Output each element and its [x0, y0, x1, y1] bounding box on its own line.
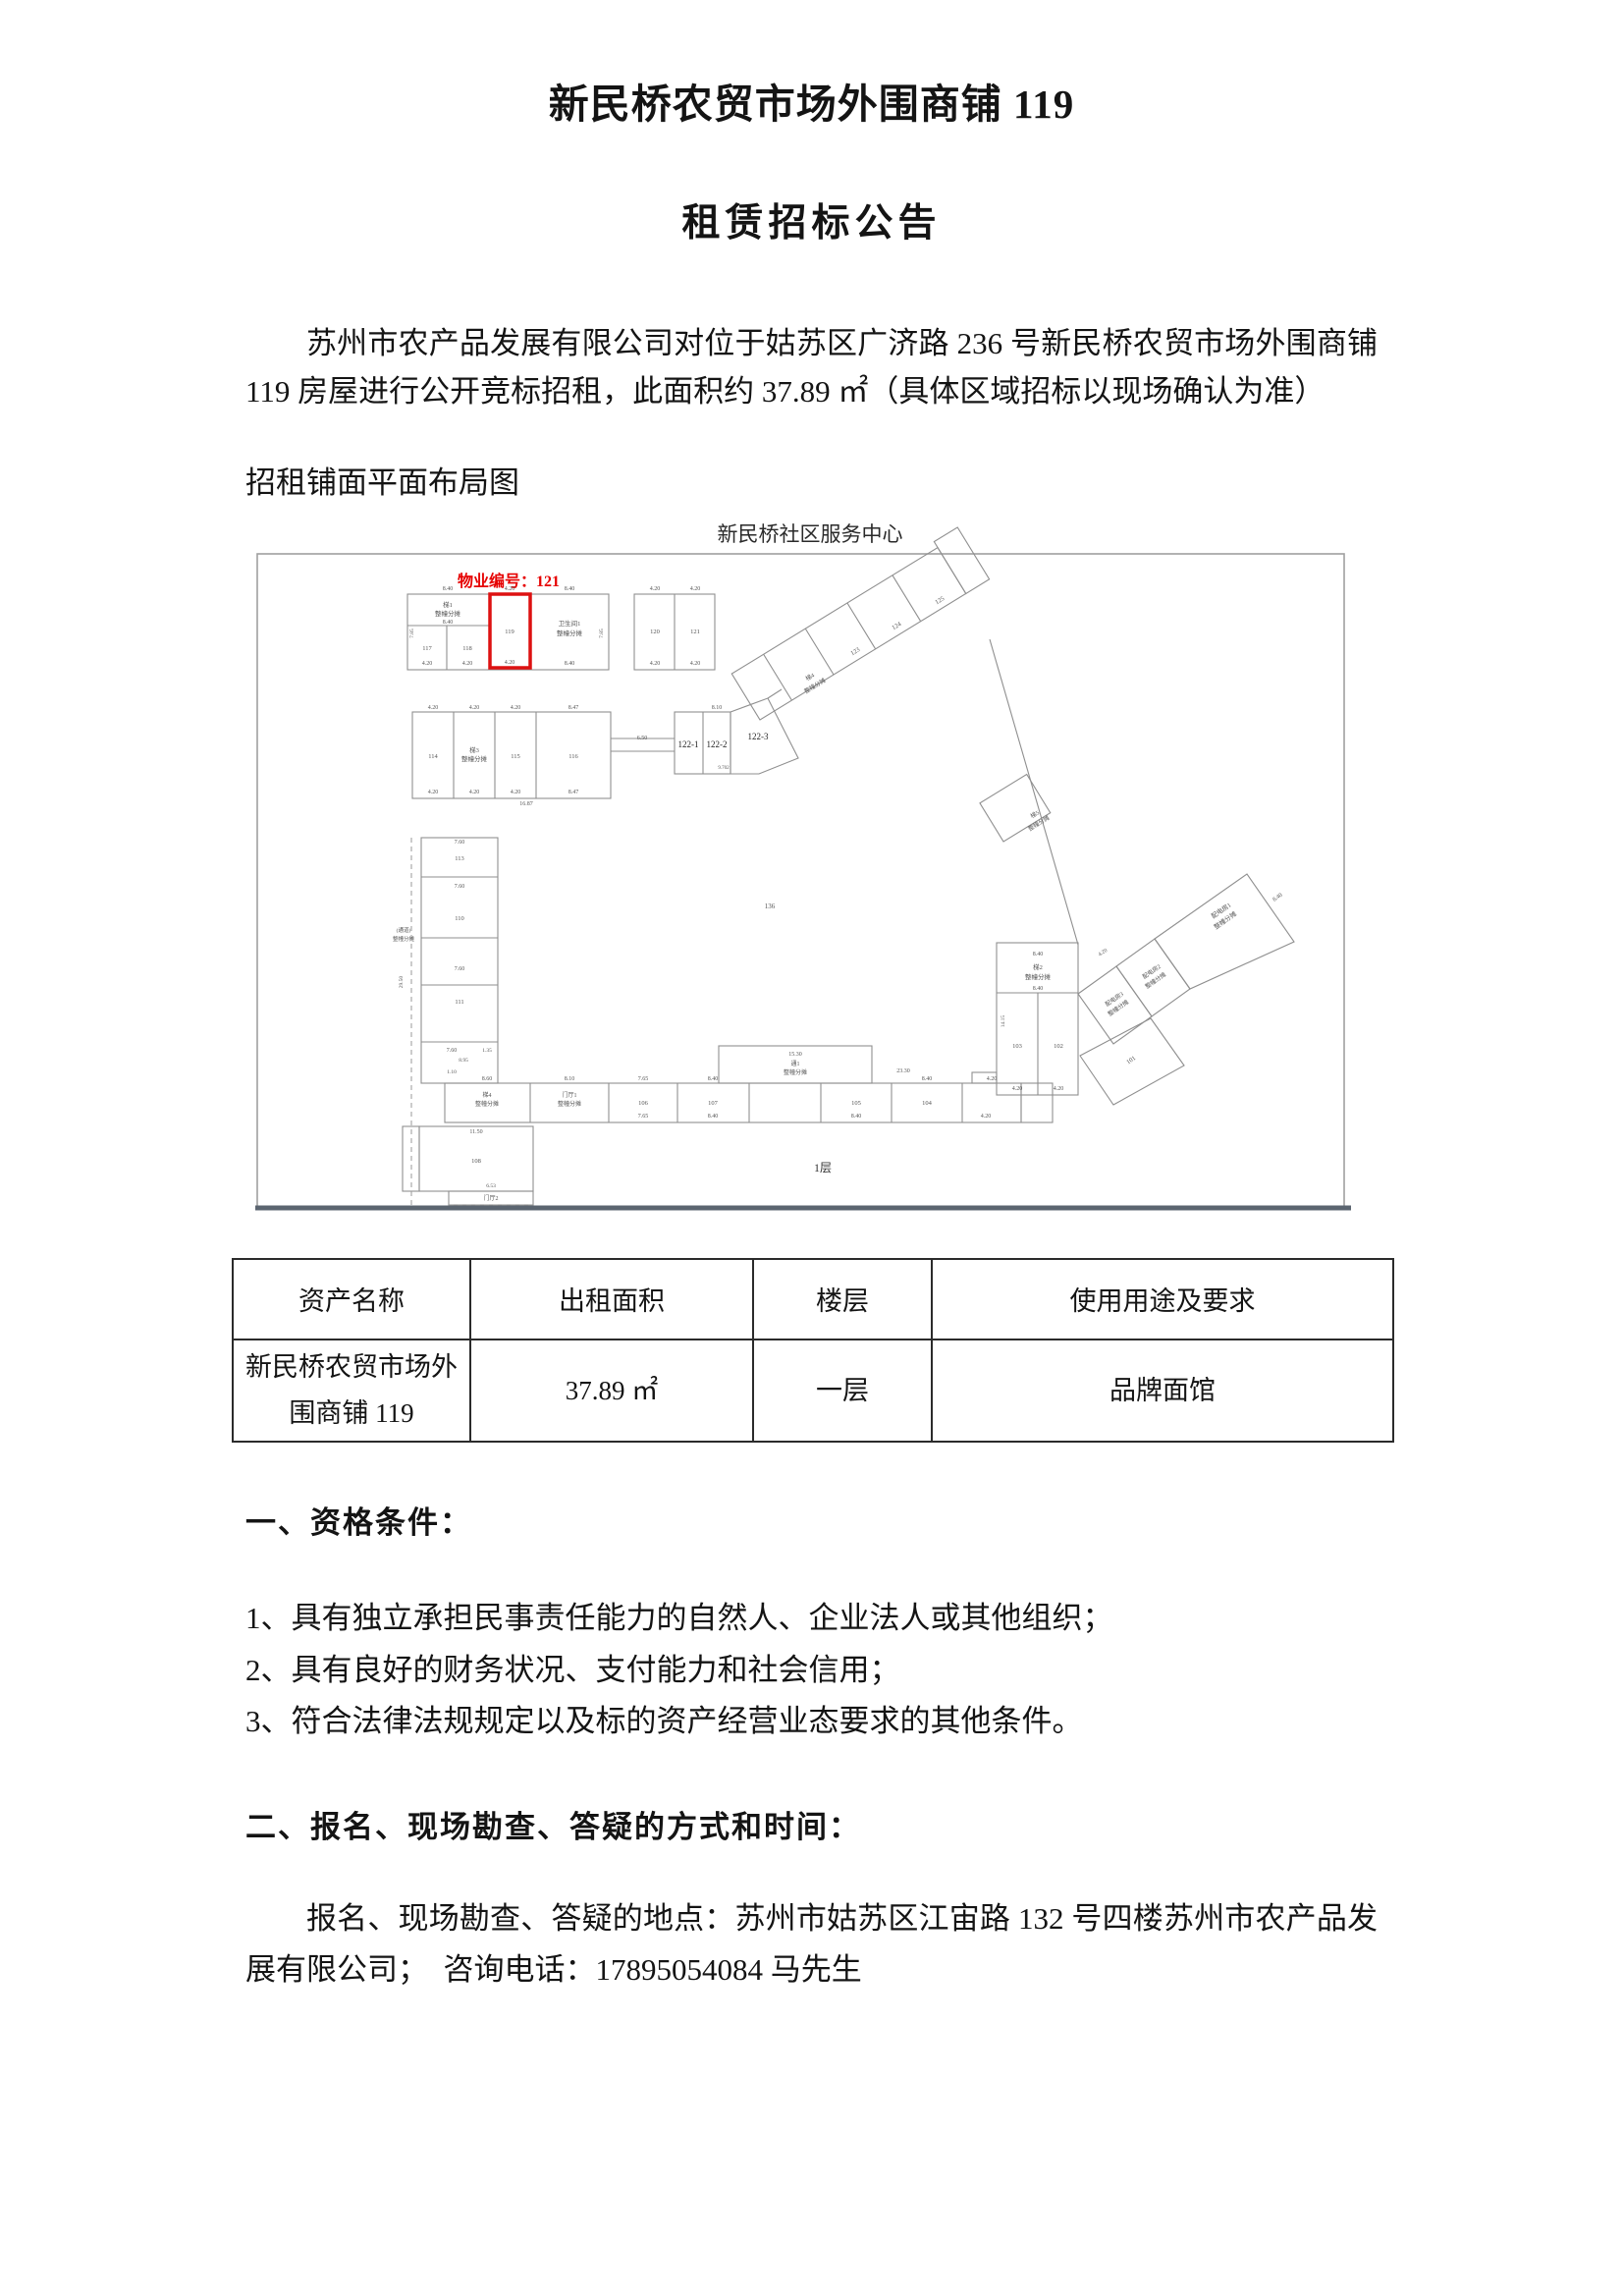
qualification-list: 1、具有独立承担民事责任能力的自然人、企业法人或其他组织； 2、具有良好的财务状… — [245, 1593, 1378, 1746]
table-header-row: 资产名称 出租面积 楼层 使用用途及要求 — [233, 1259, 1393, 1339]
plan-label: 8.40 — [443, 586, 454, 592]
plan-label: 整幢分摊 — [435, 609, 461, 618]
plan-blocks — [403, 527, 1294, 1205]
list-item: 3、符合法律法规规定以及标的资产经营业态要求的其他条件。 — [245, 1696, 1378, 1747]
plan-label: 8.40 — [1033, 986, 1044, 992]
plan-label: 4.20 — [428, 790, 439, 795]
plan-label: 7.60 — [447, 1048, 458, 1054]
plan-label: 整幢分摊 — [1025, 972, 1052, 981]
floor-plan-drawing: 新民桥社区服务中心物业编号：1218.404.208.40梯1整幢分摊8.401… — [255, 516, 1355, 1215]
plan-labels-layer: 新民桥社区服务中心物业编号：1218.404.208.40梯1整幢分摊8.401… — [393, 522, 1283, 1202]
plan-label: 通1 — [790, 1060, 799, 1067]
plan-label: 整幢分摊 — [393, 935, 415, 943]
plan-dashed-lines — [411, 838, 533, 1208]
plan-label: 116 — [568, 753, 578, 760]
plan-label: 4.20 — [690, 661, 701, 667]
plan-label: 7.65 — [638, 1114, 649, 1120]
plan-label: 7.60 — [455, 884, 465, 890]
plan-label: 124 — [891, 621, 903, 631]
plan-label: 卫生间1 — [559, 619, 581, 628]
plan-label: 4.20 — [505, 586, 515, 592]
plan-label: 4.20 — [428, 705, 439, 711]
plan-label: 1.10 — [447, 1069, 457, 1075]
plan-label: 9.702 — [718, 766, 730, 771]
plan-label: 8.40 — [443, 620, 454, 626]
cell-asset-name: 新民桥农贸市场外围商铺 119 — [233, 1339, 470, 1443]
plan-label: 8.47 — [568, 790, 579, 795]
cell-rent-area: 37.89 ㎡ — [470, 1339, 753, 1443]
plan-label: 1层 — [814, 1161, 832, 1175]
asset-table: 资产名称 出租面积 楼层 使用用途及要求 新民桥农贸市场外围商铺 119 37.… — [232, 1258, 1394, 1444]
plan-label: 梯3 — [469, 745, 479, 754]
plan-label: 118 — [462, 645, 472, 652]
intro-paragraph: 苏州市农产品发展有限公司对位于姑苏区广济路 236 号新民桥农贸市场外围商铺 1… — [245, 320, 1378, 416]
cell-floor: 一层 — [753, 1339, 932, 1443]
plan-label: 8.40 — [922, 1076, 933, 1082]
plan-label: 4.20 — [469, 790, 480, 795]
plan-label: 8.40 — [851, 1114, 862, 1120]
plan-label: 4.20 — [650, 586, 661, 592]
floor-plan-caption: 招租铺面平面布局图 — [245, 458, 1378, 502]
plan-label: 4.20 — [1012, 1086, 1023, 1092]
plan-label: 107 — [708, 1100, 719, 1107]
plan-label: 8.40 — [565, 661, 575, 667]
table-header-floor: 楼层 — [753, 1259, 932, 1339]
plan-label: 整幢分摊 — [557, 629, 583, 637]
plan-label: 4.20 — [511, 790, 521, 795]
plan-label: 4.20 — [690, 586, 701, 592]
plan-label: 122-2 — [707, 739, 728, 749]
plan-label: (通道) — [397, 926, 411, 934]
plan-label: 113 — [455, 855, 464, 862]
plan-label: 4.20 — [1054, 1086, 1064, 1092]
plan-label: 7.85 — [599, 629, 605, 638]
plan-label: 6.50 — [637, 736, 648, 741]
plan-label: 门厅1 — [562, 1091, 576, 1099]
plan-label: 整幢分摊 — [461, 754, 488, 763]
plan-label: 114 — [428, 753, 438, 760]
floor-plan-figure: 新民桥社区服务中心物业编号：1218.404.208.40梯1整幢分摊8.401… — [255, 516, 1355, 1215]
plan-label: 106 — [638, 1100, 649, 1107]
plan-label: 102 — [1054, 1043, 1063, 1050]
list-item: 2、具有良好的财务状况、支付能力和社会信用； — [245, 1645, 1378, 1696]
plan-label: 8.40 — [708, 1114, 719, 1120]
plan-label: 4.20 — [981, 1114, 992, 1120]
plan-label: 120 — [650, 629, 660, 635]
plan-label: 123 — [849, 646, 861, 657]
plan-label: 梯2 — [1033, 962, 1043, 971]
plan-label: 1.35 — [482, 1048, 492, 1054]
table-header-usage: 使用用途及要求 — [932, 1259, 1393, 1339]
plan-label: 整幢分摊 — [475, 1100, 499, 1108]
document-page: 新民桥农贸市场外围商铺 119 租赁招标公告 苏州市农产品发展有限公司对位于姑苏… — [0, 0, 1623, 2296]
plan-label: 4.20 — [650, 661, 661, 667]
contact-paragraph: 报名、现场勘查、答疑的地点：苏州市姑苏区江宙路 132 号四楼苏州市农产品发展有… — [245, 1893, 1378, 1995]
plan-label: 7.60 — [455, 840, 465, 846]
plan-label: 梯1 — [443, 600, 453, 609]
page-subtitle: 租赁招标公告 — [245, 192, 1378, 247]
plan-label: 梯4 — [482, 1091, 491, 1099]
plan-label: 8.40 — [1271, 893, 1283, 903]
plan-label: 121 — [690, 629, 700, 635]
plan-label: 11.50 — [469, 1129, 482, 1135]
plan-label: 111 — [455, 999, 463, 1006]
plan-label: 7.65 — [638, 1076, 649, 1082]
plan-label: 108 — [471, 1158, 481, 1165]
plan-label: 4.20 — [422, 661, 433, 667]
plan-label: 门厅2 — [483, 1194, 498, 1202]
plan-label: 103 — [1012, 1043, 1022, 1050]
plan-label: 8.60 — [482, 1076, 493, 1082]
plan-label: 4.20 — [987, 1076, 998, 1082]
plan-label: 122-3 — [748, 732, 769, 741]
plan-label: 125 — [934, 595, 946, 606]
plan-label: 4.20 — [469, 705, 480, 711]
plan-label: 119 — [505, 629, 514, 635]
plan-label: 新民桥社区服务中心 — [718, 522, 903, 546]
plan-label: 105 — [851, 1100, 861, 1107]
plan-label: 14.15 — [1001, 1015, 1006, 1028]
plan-label: 7.60 — [455, 966, 465, 972]
plan-label: 8.47 — [568, 705, 579, 711]
plan-label: 136 — [765, 902, 776, 910]
plan-label: 115 — [511, 753, 520, 760]
plan-label: 15.30 — [788, 1052, 802, 1058]
cell-usage: 品牌面馆 — [932, 1339, 1393, 1443]
table-header-asset-name: 资产名称 — [233, 1259, 470, 1339]
plan-label: 23.30 — [896, 1068, 910, 1074]
plan-label: 104 — [922, 1100, 933, 1107]
plan-label: 梯4 — [804, 671, 816, 683]
plan-label: 4.20 — [462, 661, 473, 667]
plan-label: 8.10 — [712, 705, 723, 711]
plan-label: 8.40 — [565, 586, 575, 592]
plan-label: 4.20 — [511, 705, 521, 711]
plan-label: 8.40 — [1033, 952, 1044, 957]
plan-label: 8.40 — [708, 1076, 719, 1082]
table-header-rent-area: 出租面积 — [470, 1259, 753, 1339]
page-title: 新民桥农贸市场外围商铺 119 — [245, 71, 1378, 130]
plan-label: 整幢分摊 — [784, 1068, 807, 1076]
table-row: 新民桥农贸市场外围商铺 119 37.89 ㎡ 一层 品牌面馆 — [233, 1339, 1393, 1443]
plan-label: 6.53 — [486, 1183, 496, 1189]
list-item: 1、具有独立承担民事责任能力的自然人、企业法人或其他组织； — [245, 1593, 1378, 1644]
plan-label: 7.85 — [409, 629, 415, 638]
plan-label: 16.87 — [519, 801, 533, 807]
section-heading-qualifications: 一、资格条件： — [245, 1498, 1378, 1542]
plan-label: 4.20 — [505, 660, 515, 666]
plan-label: 101 — [1125, 1055, 1137, 1066]
plan-label: 110 — [455, 915, 464, 922]
section-heading-registration: 二、报名、现场勘查、答疑的方式和时间： — [245, 1802, 1378, 1846]
plan-label: 4.20 — [1098, 948, 1109, 958]
plan-label: 8.10 — [565, 1076, 575, 1082]
plan-label: 117 — [422, 645, 432, 652]
plan-label: 8.95 — [459, 1058, 468, 1064]
plan-boundary — [257, 554, 1344, 1208]
plan-label: 29.50 — [399, 976, 405, 989]
plan-label: 122-1 — [678, 739, 699, 749]
plan-label: 整幢分摊 — [558, 1100, 581, 1108]
